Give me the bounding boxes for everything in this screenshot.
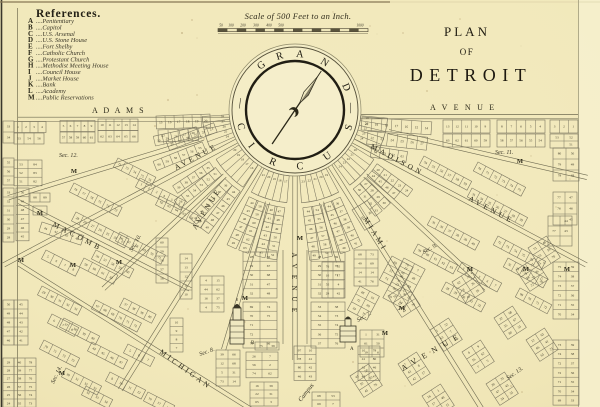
svg-text:36: 36 — [571, 371, 575, 375]
svg-text:64: 64 — [116, 134, 120, 138]
svg-text:62: 62 — [455, 139, 459, 143]
svg-text:39: 39 — [571, 265, 575, 269]
svg-text:80: 80 — [558, 152, 562, 156]
svg-text:46: 46 — [309, 227, 313, 231]
svg-text:33: 33 — [571, 399, 575, 403]
svg-text:48: 48 — [339, 238, 343, 242]
svg-text:58: 58 — [500, 139, 504, 143]
svg-text:36: 36 — [18, 393, 22, 397]
svg-text:....Public Reservations: ....Public Reservations — [36, 94, 94, 101]
svg-text:31: 31 — [269, 392, 273, 396]
svg-text:39: 39 — [220, 353, 224, 357]
svg-text:V: V — [290, 263, 298, 268]
svg-text:56: 56 — [519, 139, 523, 143]
svg-text:38: 38 — [571, 352, 575, 356]
svg-text:75: 75 — [259, 344, 263, 348]
svg-text:47: 47 — [336, 230, 340, 234]
svg-text:35: 35 — [318, 323, 322, 327]
svg-text:53: 53 — [19, 163, 23, 167]
svg-text:M: M — [523, 266, 529, 273]
svg-text:4: 4 — [205, 279, 207, 283]
svg-text:6: 6 — [520, 125, 522, 129]
svg-text:35: 35 — [18, 401, 22, 405]
svg-text:50: 50 — [21, 191, 25, 195]
svg-text:14: 14 — [425, 126, 429, 130]
svg-text:4: 4 — [338, 283, 340, 287]
svg-text:49: 49 — [232, 241, 236, 245]
svg-text:75: 75 — [216, 306, 220, 310]
svg-text:43: 43 — [309, 374, 313, 378]
svg-text:46: 46 — [7, 339, 11, 343]
svg-text:47: 47 — [239, 225, 243, 229]
svg-text:69: 69 — [250, 305, 254, 309]
svg-text:56: 56 — [37, 137, 41, 141]
svg-text:26: 26 — [252, 355, 256, 359]
svg-text:DETROIT: DETROIT — [410, 65, 532, 85]
svg-text:39: 39 — [347, 225, 351, 229]
svg-text:55: 55 — [7, 161, 11, 165]
svg-text:69: 69 — [317, 402, 321, 406]
svg-text:68: 68 — [317, 394, 321, 398]
svg-text:500: 500 — [278, 24, 284, 28]
svg-text:44: 44 — [564, 219, 568, 223]
svg-text:73: 73 — [335, 314, 339, 318]
svg-text:46: 46 — [385, 185, 389, 189]
svg-text:24: 24 — [339, 164, 343, 168]
svg-text:32: 32 — [318, 292, 322, 296]
svg-text:16: 16 — [168, 120, 172, 124]
svg-text:29: 29 — [326, 292, 330, 296]
svg-text:10: 10 — [100, 123, 104, 127]
svg-text:83: 83 — [33, 171, 37, 175]
svg-text:37: 37 — [216, 297, 220, 301]
svg-text:35: 35 — [571, 380, 575, 384]
svg-text:36: 36 — [224, 184, 228, 188]
svg-text:53: 53 — [555, 136, 559, 140]
svg-text:33: 33 — [7, 191, 11, 195]
svg-text:28: 28 — [250, 255, 254, 259]
svg-text:50: 50 — [274, 236, 278, 240]
svg-text:89: 89 — [43, 196, 47, 200]
svg-text:59: 59 — [160, 250, 164, 254]
svg-text:400: 400 — [266, 24, 272, 28]
svg-text:11: 11 — [184, 284, 188, 288]
svg-text:34: 34 — [318, 314, 322, 318]
svg-text:2: 2 — [25, 125, 27, 129]
svg-text:97: 97 — [298, 349, 302, 353]
svg-text:37: 37 — [318, 342, 322, 346]
svg-text:U: U — [290, 296, 298, 301]
svg-text:44: 44 — [19, 312, 23, 316]
svg-text:44: 44 — [307, 210, 311, 214]
svg-text:55: 55 — [529, 139, 533, 143]
svg-text:42: 42 — [266, 225, 270, 229]
svg-text:68: 68 — [358, 253, 362, 257]
svg-text:23: 23 — [343, 161, 347, 165]
svg-text:10: 10 — [309, 349, 313, 353]
svg-text:10: 10 — [175, 320, 179, 324]
svg-text:66: 66 — [232, 353, 236, 357]
svg-text:49: 49 — [571, 163, 575, 167]
svg-text:40: 40 — [18, 360, 22, 364]
svg-text:88: 88 — [33, 196, 37, 200]
svg-text:16: 16 — [204, 297, 208, 301]
svg-text:14: 14 — [232, 380, 236, 384]
svg-text:52: 52 — [19, 171, 23, 175]
svg-text:71: 71 — [250, 323, 254, 327]
svg-text:32: 32 — [7, 200, 11, 204]
svg-text:1: 1 — [17, 125, 19, 129]
svg-text:3: 3 — [33, 125, 35, 129]
svg-text:73: 73 — [558, 284, 562, 288]
svg-text:60: 60 — [474, 139, 478, 143]
svg-text:24: 24 — [7, 401, 11, 405]
svg-text:72: 72 — [558, 371, 562, 375]
svg-text:N: N — [290, 285, 298, 290]
svg-text:53: 53 — [200, 183, 204, 187]
svg-text:M: M — [59, 370, 65, 377]
svg-text:46: 46 — [243, 217, 247, 221]
svg-text:31: 31 — [363, 195, 367, 199]
svg-text:19: 19 — [364, 351, 368, 355]
svg-text:24: 24 — [226, 134, 230, 138]
svg-text:62: 62 — [246, 238, 250, 242]
svg-text:77: 77 — [552, 229, 556, 233]
svg-text:74: 74 — [558, 352, 562, 356]
svg-text:47: 47 — [7, 330, 11, 334]
svg-text:PLAN: PLAN — [444, 24, 490, 39]
svg-text:75: 75 — [267, 314, 271, 318]
svg-text:39: 39 — [271, 344, 275, 348]
svg-text:12: 12 — [455, 125, 459, 129]
svg-text:70: 70 — [558, 312, 562, 316]
svg-text:41: 41 — [19, 339, 23, 343]
svg-text:69: 69 — [558, 399, 562, 403]
svg-text:72: 72 — [558, 361, 562, 365]
svg-text:79: 79 — [558, 163, 562, 167]
svg-text:36: 36 — [318, 332, 322, 336]
svg-text:9: 9 — [484, 125, 486, 129]
svg-text:74: 74 — [335, 323, 339, 327]
svg-text:34: 34 — [7, 136, 11, 140]
svg-text:48: 48 — [276, 218, 280, 222]
svg-text:7: 7 — [176, 346, 178, 350]
svg-text:45: 45 — [330, 213, 334, 217]
svg-text:20: 20 — [233, 148, 237, 152]
svg-text:7: 7 — [511, 125, 513, 129]
svg-text:300: 300 — [253, 24, 259, 28]
svg-text:41: 41 — [354, 241, 358, 245]
svg-text:26: 26 — [223, 125, 227, 129]
svg-text:11: 11 — [465, 125, 469, 129]
svg-text:74: 74 — [252, 372, 256, 376]
svg-text:72: 72 — [250, 332, 254, 336]
svg-text:58: 58 — [69, 136, 73, 140]
svg-text:27: 27 — [222, 120, 226, 124]
svg-text:M: M — [18, 257, 24, 264]
svg-text:43: 43 — [19, 321, 23, 325]
svg-text:58: 58 — [258, 204, 262, 208]
svg-text:28: 28 — [7, 236, 11, 240]
svg-text:59: 59 — [166, 159, 170, 163]
svg-text:1: 1 — [365, 333, 367, 337]
svg-text:M: M — [467, 266, 473, 273]
svg-text:57: 57 — [160, 268, 164, 272]
svg-text:56: 56 — [252, 363, 256, 367]
svg-text:4: 4 — [205, 306, 207, 310]
svg-text:55: 55 — [186, 194, 190, 198]
svg-text:52: 52 — [569, 136, 573, 140]
svg-text:31: 31 — [376, 333, 380, 337]
svg-text:29: 29 — [7, 227, 11, 231]
svg-text:49: 49 — [312, 253, 316, 257]
svg-text:56: 56 — [319, 225, 323, 229]
svg-text:55: 55 — [317, 217, 321, 221]
svg-text:47: 47 — [267, 282, 271, 286]
svg-text:76: 76 — [29, 377, 33, 381]
svg-text:45: 45 — [21, 235, 25, 239]
svg-text:42: 42 — [309, 366, 313, 370]
svg-text:72: 72 — [558, 293, 562, 297]
svg-text:26: 26 — [7, 385, 11, 389]
svg-text:27: 27 — [7, 377, 11, 381]
svg-text:45: 45 — [569, 218, 573, 222]
svg-text:20: 20 — [365, 122, 369, 126]
svg-text:39: 39 — [571, 343, 575, 347]
svg-text:53: 53 — [17, 137, 21, 141]
svg-text:8: 8 — [501, 125, 503, 129]
svg-text:A: A — [296, 49, 305, 61]
svg-text:21: 21 — [384, 173, 388, 177]
svg-text:57: 57 — [62, 136, 66, 140]
svg-text:42: 42 — [19, 330, 23, 334]
svg-text:E: E — [290, 308, 298, 312]
svg-text:78: 78 — [298, 357, 302, 361]
svg-text:49: 49 — [358, 262, 362, 266]
svg-text:12: 12 — [184, 275, 188, 279]
svg-text:48: 48 — [311, 245, 315, 249]
svg-text:49: 49 — [7, 312, 11, 316]
svg-text:49: 49 — [275, 227, 279, 231]
svg-text:59: 59 — [76, 136, 80, 140]
svg-text:51: 51 — [272, 244, 276, 248]
svg-text:44: 44 — [328, 205, 332, 209]
svg-text:8: 8 — [176, 337, 178, 341]
svg-text:44: 44 — [204, 288, 208, 292]
svg-text:46: 46 — [569, 207, 573, 211]
svg-text:18: 18 — [241, 158, 245, 162]
svg-text:12: 12 — [116, 123, 120, 127]
svg-text:15: 15 — [216, 279, 220, 283]
svg-text:51: 51 — [213, 172, 217, 176]
svg-text:46: 46 — [373, 366, 377, 370]
svg-text:40: 40 — [270, 208, 274, 212]
svg-text:17: 17 — [177, 120, 181, 124]
svg-text:30: 30 — [250, 273, 254, 277]
svg-text:70: 70 — [250, 314, 254, 318]
svg-text:A V E N U E: A V E N U E — [430, 103, 496, 112]
svg-text:22: 22 — [308, 179, 312, 183]
svg-text:58: 58 — [174, 156, 178, 160]
svg-text:33: 33 — [374, 208, 378, 212]
svg-text:3: 3 — [554, 125, 556, 129]
svg-text:44: 44 — [372, 174, 376, 178]
svg-text:74: 74 — [558, 274, 562, 278]
svg-text:76: 76 — [557, 207, 561, 211]
svg-text:27: 27 — [364, 182, 368, 186]
svg-text:43: 43 — [264, 234, 268, 238]
svg-text:M: M — [116, 259, 122, 266]
svg-text:22: 22 — [255, 392, 259, 396]
svg-text:25: 25 — [224, 130, 228, 134]
svg-text:25: 25 — [7, 393, 11, 397]
svg-text:8: 8 — [84, 124, 86, 128]
svg-text:A: A — [290, 252, 298, 257]
svg-text:54: 54 — [193, 189, 197, 193]
svg-text:9: 9 — [176, 329, 178, 333]
svg-text:15: 15 — [415, 125, 419, 129]
svg-text:60: 60 — [252, 221, 256, 225]
svg-text:84: 84 — [33, 163, 37, 167]
svg-text:31: 31 — [318, 282, 322, 286]
svg-text:45: 45 — [247, 209, 251, 213]
svg-text:4: 4 — [539, 125, 541, 129]
svg-text:15: 15 — [159, 120, 163, 124]
svg-text:45: 45 — [19, 303, 23, 307]
svg-text:2: 2 — [563, 125, 565, 129]
svg-text:78: 78 — [558, 174, 562, 178]
svg-text:5: 5 — [221, 371, 223, 375]
svg-text:16: 16 — [255, 384, 259, 388]
svg-text:40: 40 — [350, 233, 354, 237]
svg-text:41: 41 — [268, 216, 272, 220]
svg-text:44: 44 — [250, 201, 254, 205]
svg-text:39: 39 — [269, 384, 273, 388]
svg-text:29: 29 — [318, 264, 322, 268]
svg-text:7: 7 — [77, 124, 79, 128]
svg-text:42: 42 — [337, 292, 341, 296]
svg-text:37: 37 — [18, 385, 22, 389]
svg-text:37: 37 — [192, 176, 196, 180]
svg-text:52: 52 — [271, 253, 275, 257]
svg-text:62: 62 — [216, 288, 220, 292]
svg-text:61: 61 — [249, 229, 253, 233]
svg-text:74: 74 — [29, 393, 33, 397]
svg-text:36: 36 — [336, 201, 340, 205]
svg-text:56: 56 — [7, 170, 11, 174]
svg-text:20: 20 — [376, 168, 380, 172]
svg-text:76: 76 — [326, 265, 330, 269]
svg-text:21: 21 — [314, 177, 318, 181]
svg-text:59: 59 — [484, 139, 488, 143]
svg-text:28: 28 — [318, 255, 322, 259]
svg-text:50: 50 — [7, 303, 11, 307]
svg-text:14: 14 — [358, 271, 362, 275]
svg-text:E: E — [290, 275, 298, 279]
svg-text:63: 63 — [243, 246, 247, 250]
svg-text:M: M — [564, 266, 570, 273]
svg-text:24: 24 — [360, 137, 364, 141]
svg-text:47: 47 — [310, 236, 314, 240]
svg-text:67: 67 — [267, 264, 271, 268]
svg-text:OF: OF — [460, 47, 475, 57]
svg-text:73: 73 — [558, 343, 562, 347]
svg-text:30: 30 — [7, 218, 11, 222]
svg-text:82: 82 — [33, 180, 37, 184]
svg-text:77: 77 — [557, 196, 561, 200]
svg-text:Sec. 12.: Sec. 12. — [59, 153, 78, 159]
svg-text:19: 19 — [237, 153, 241, 157]
svg-text:30: 30 — [318, 273, 322, 277]
svg-text:80: 80 — [373, 357, 377, 361]
svg-text:28: 28 — [370, 189, 374, 193]
svg-text:38: 38 — [343, 217, 347, 221]
svg-text:49: 49 — [205, 225, 209, 229]
svg-text:2: 2 — [269, 363, 271, 367]
svg-text:19: 19 — [375, 123, 379, 127]
svg-text:54: 54 — [316, 208, 320, 212]
svg-text:48: 48 — [571, 174, 575, 178]
svg-text:54: 54 — [539, 139, 543, 143]
svg-text:57: 57 — [7, 179, 11, 183]
svg-text:6: 6 — [70, 124, 72, 128]
svg-text:51: 51 — [569, 143, 573, 147]
svg-text:31: 31 — [232, 371, 236, 375]
svg-text:10: 10 — [474, 125, 478, 129]
svg-text:62: 62 — [100, 134, 104, 138]
svg-text:49: 49 — [21, 199, 25, 203]
svg-text:1: 1 — [572, 125, 574, 129]
svg-text:23: 23 — [398, 184, 402, 188]
svg-text:34: 34 — [571, 312, 575, 316]
svg-text:49: 49 — [342, 246, 346, 250]
svg-text:33: 33 — [318, 305, 322, 309]
svg-text:20: 20 — [319, 175, 323, 179]
svg-text:18: 18 — [186, 120, 190, 124]
svg-text:5: 5 — [63, 124, 65, 128]
svg-text:29: 29 — [250, 264, 254, 268]
svg-text:32: 32 — [250, 292, 254, 296]
svg-text:13: 13 — [446, 125, 450, 129]
svg-text:47: 47 — [569, 196, 573, 200]
svg-text:55: 55 — [337, 265, 341, 269]
svg-text:34: 34 — [571, 389, 575, 393]
svg-text:70: 70 — [558, 389, 562, 393]
svg-text:30: 30 — [358, 188, 362, 192]
svg-text:22: 22 — [347, 157, 351, 161]
svg-text:48: 48 — [7, 321, 11, 325]
svg-text:Sec. 11.: Sec. 11. — [495, 150, 513, 156]
svg-text:39: 39 — [18, 369, 22, 373]
svg-text:54: 54 — [27, 137, 31, 141]
svg-text:17: 17 — [337, 274, 341, 278]
svg-text:37: 37 — [339, 209, 343, 213]
svg-text:75: 75 — [335, 332, 339, 336]
svg-text:63: 63 — [446, 139, 450, 143]
svg-text:47: 47 — [392, 191, 396, 195]
svg-text:78: 78 — [373, 349, 377, 353]
svg-text:M: M — [242, 295, 248, 302]
svg-text:1000: 1000 — [356, 24, 363, 28]
svg-text:73: 73 — [220, 380, 224, 384]
svg-text:78: 78 — [29, 360, 33, 364]
svg-text:21: 21 — [262, 173, 266, 177]
svg-text:21: 21 — [351, 153, 355, 157]
svg-text:45: 45 — [227, 197, 231, 201]
svg-text:20: 20 — [354, 148, 358, 152]
svg-text:65: 65 — [124, 134, 128, 138]
svg-text:45: 45 — [308, 218, 312, 222]
